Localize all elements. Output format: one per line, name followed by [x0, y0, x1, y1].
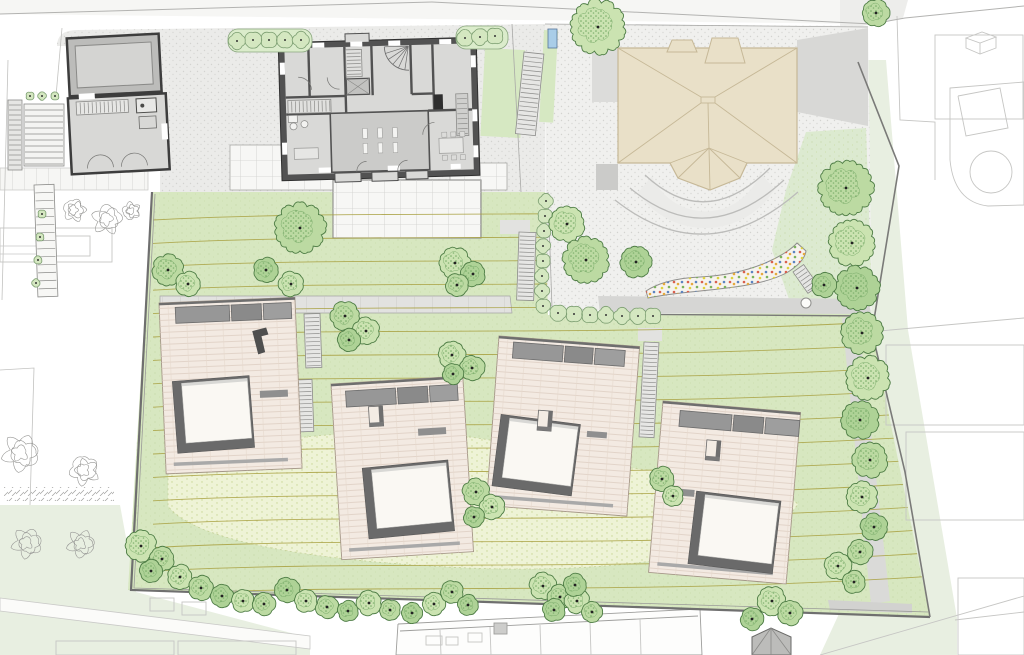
water-feature: [548, 29, 557, 48]
house-2: [331, 376, 473, 560]
outbuilding: [65, 33, 170, 174]
roof-strip: [175, 305, 230, 323]
steps-left-neighbor: [24, 104, 64, 166]
existing-villa: [278, 30, 480, 183]
bush: [36, 233, 44, 241]
tree: [663, 486, 683, 506]
bush: [38, 210, 46, 218]
bush: [645, 308, 661, 324]
ladder-left-neighbor: [8, 100, 22, 170]
tree: [463, 507, 484, 528]
kitchen-cabinets: [456, 94, 469, 136]
roof-strip: [564, 346, 593, 364]
bush: [487, 28, 503, 44]
tree: [254, 257, 278, 282]
tree: [542, 598, 565, 621]
terrace-south: [333, 180, 481, 238]
tree: [862, 0, 890, 27]
courtyard: [172, 376, 254, 454]
site-plan-drawing: [0, 0, 1024, 655]
tree: [294, 590, 316, 613]
bush: [566, 306, 582, 322]
tree: [445, 274, 468, 297]
tree: [842, 570, 865, 593]
neighbor-gray-square: [596, 164, 618, 190]
bush: [26, 92, 34, 100]
bush: [51, 92, 59, 100]
roof-strip: [733, 415, 764, 433]
house-3: [486, 336, 639, 516]
gray-box: [494, 623, 507, 634]
roof-strip: [594, 348, 625, 366]
site-plan-canvas: [0, 0, 1024, 655]
stairs-garden-1: [517, 232, 536, 301]
bush: [582, 307, 598, 323]
roof-strip: [765, 418, 800, 437]
roof-strip: [345, 388, 396, 407]
roof-strip: [429, 384, 458, 402]
tree: [380, 600, 401, 621]
tree: [189, 575, 213, 600]
courtyard: [688, 491, 781, 574]
house-1: [159, 297, 302, 474]
scrub-band: [4, 487, 114, 501]
neighbor-driveway: [797, 28, 868, 126]
bush: [536, 254, 550, 268]
tree: [337, 600, 358, 621]
roof-strip: [263, 302, 292, 319]
roof-strip: [512, 342, 563, 362]
villa-stair: [345, 49, 362, 76]
bush: [34, 256, 42, 264]
outbuilding-stair: [76, 99, 129, 115]
villa-corridor-stair: [288, 99, 331, 113]
stairs-garden-2: [304, 313, 322, 368]
roof-strip: [231, 304, 262, 321]
roof-strip: [397, 386, 428, 404]
roof-vent: [260, 390, 288, 398]
tree: [168, 564, 192, 589]
tree: [176, 271, 200, 296]
tree: [846, 481, 877, 513]
courtyard: [362, 460, 454, 539]
courtyard: [492, 414, 581, 496]
tree: [231, 590, 253, 613]
manhole: [801, 298, 811, 308]
bush: [261, 32, 277, 48]
